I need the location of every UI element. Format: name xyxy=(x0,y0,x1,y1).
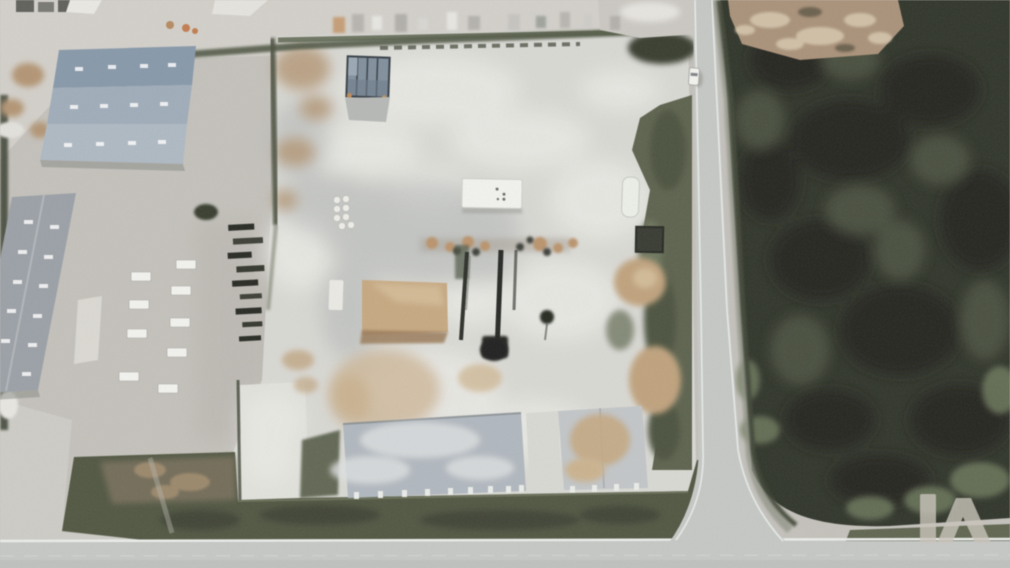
film-grain-overlay xyxy=(0,0,1010,568)
aerial-photograph xyxy=(0,0,1010,568)
